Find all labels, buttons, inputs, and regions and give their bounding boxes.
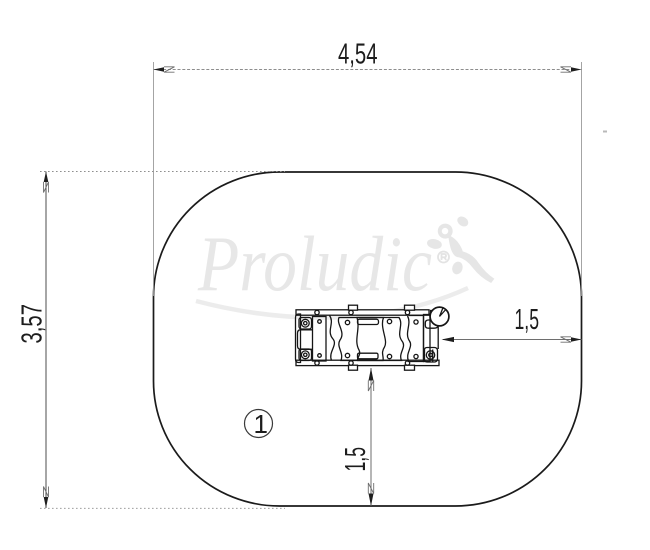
svg-text:1: 1 [254, 409, 268, 439]
svg-text:1,5: 1,5 [515, 304, 540, 336]
svg-text:4,54: 4,54 [338, 39, 378, 71]
svg-text:3,57: 3,57 [17, 304, 49, 344]
svg-text:1,5: 1,5 [340, 447, 372, 472]
svg-text:Proludic: Proludic [197, 220, 432, 307]
